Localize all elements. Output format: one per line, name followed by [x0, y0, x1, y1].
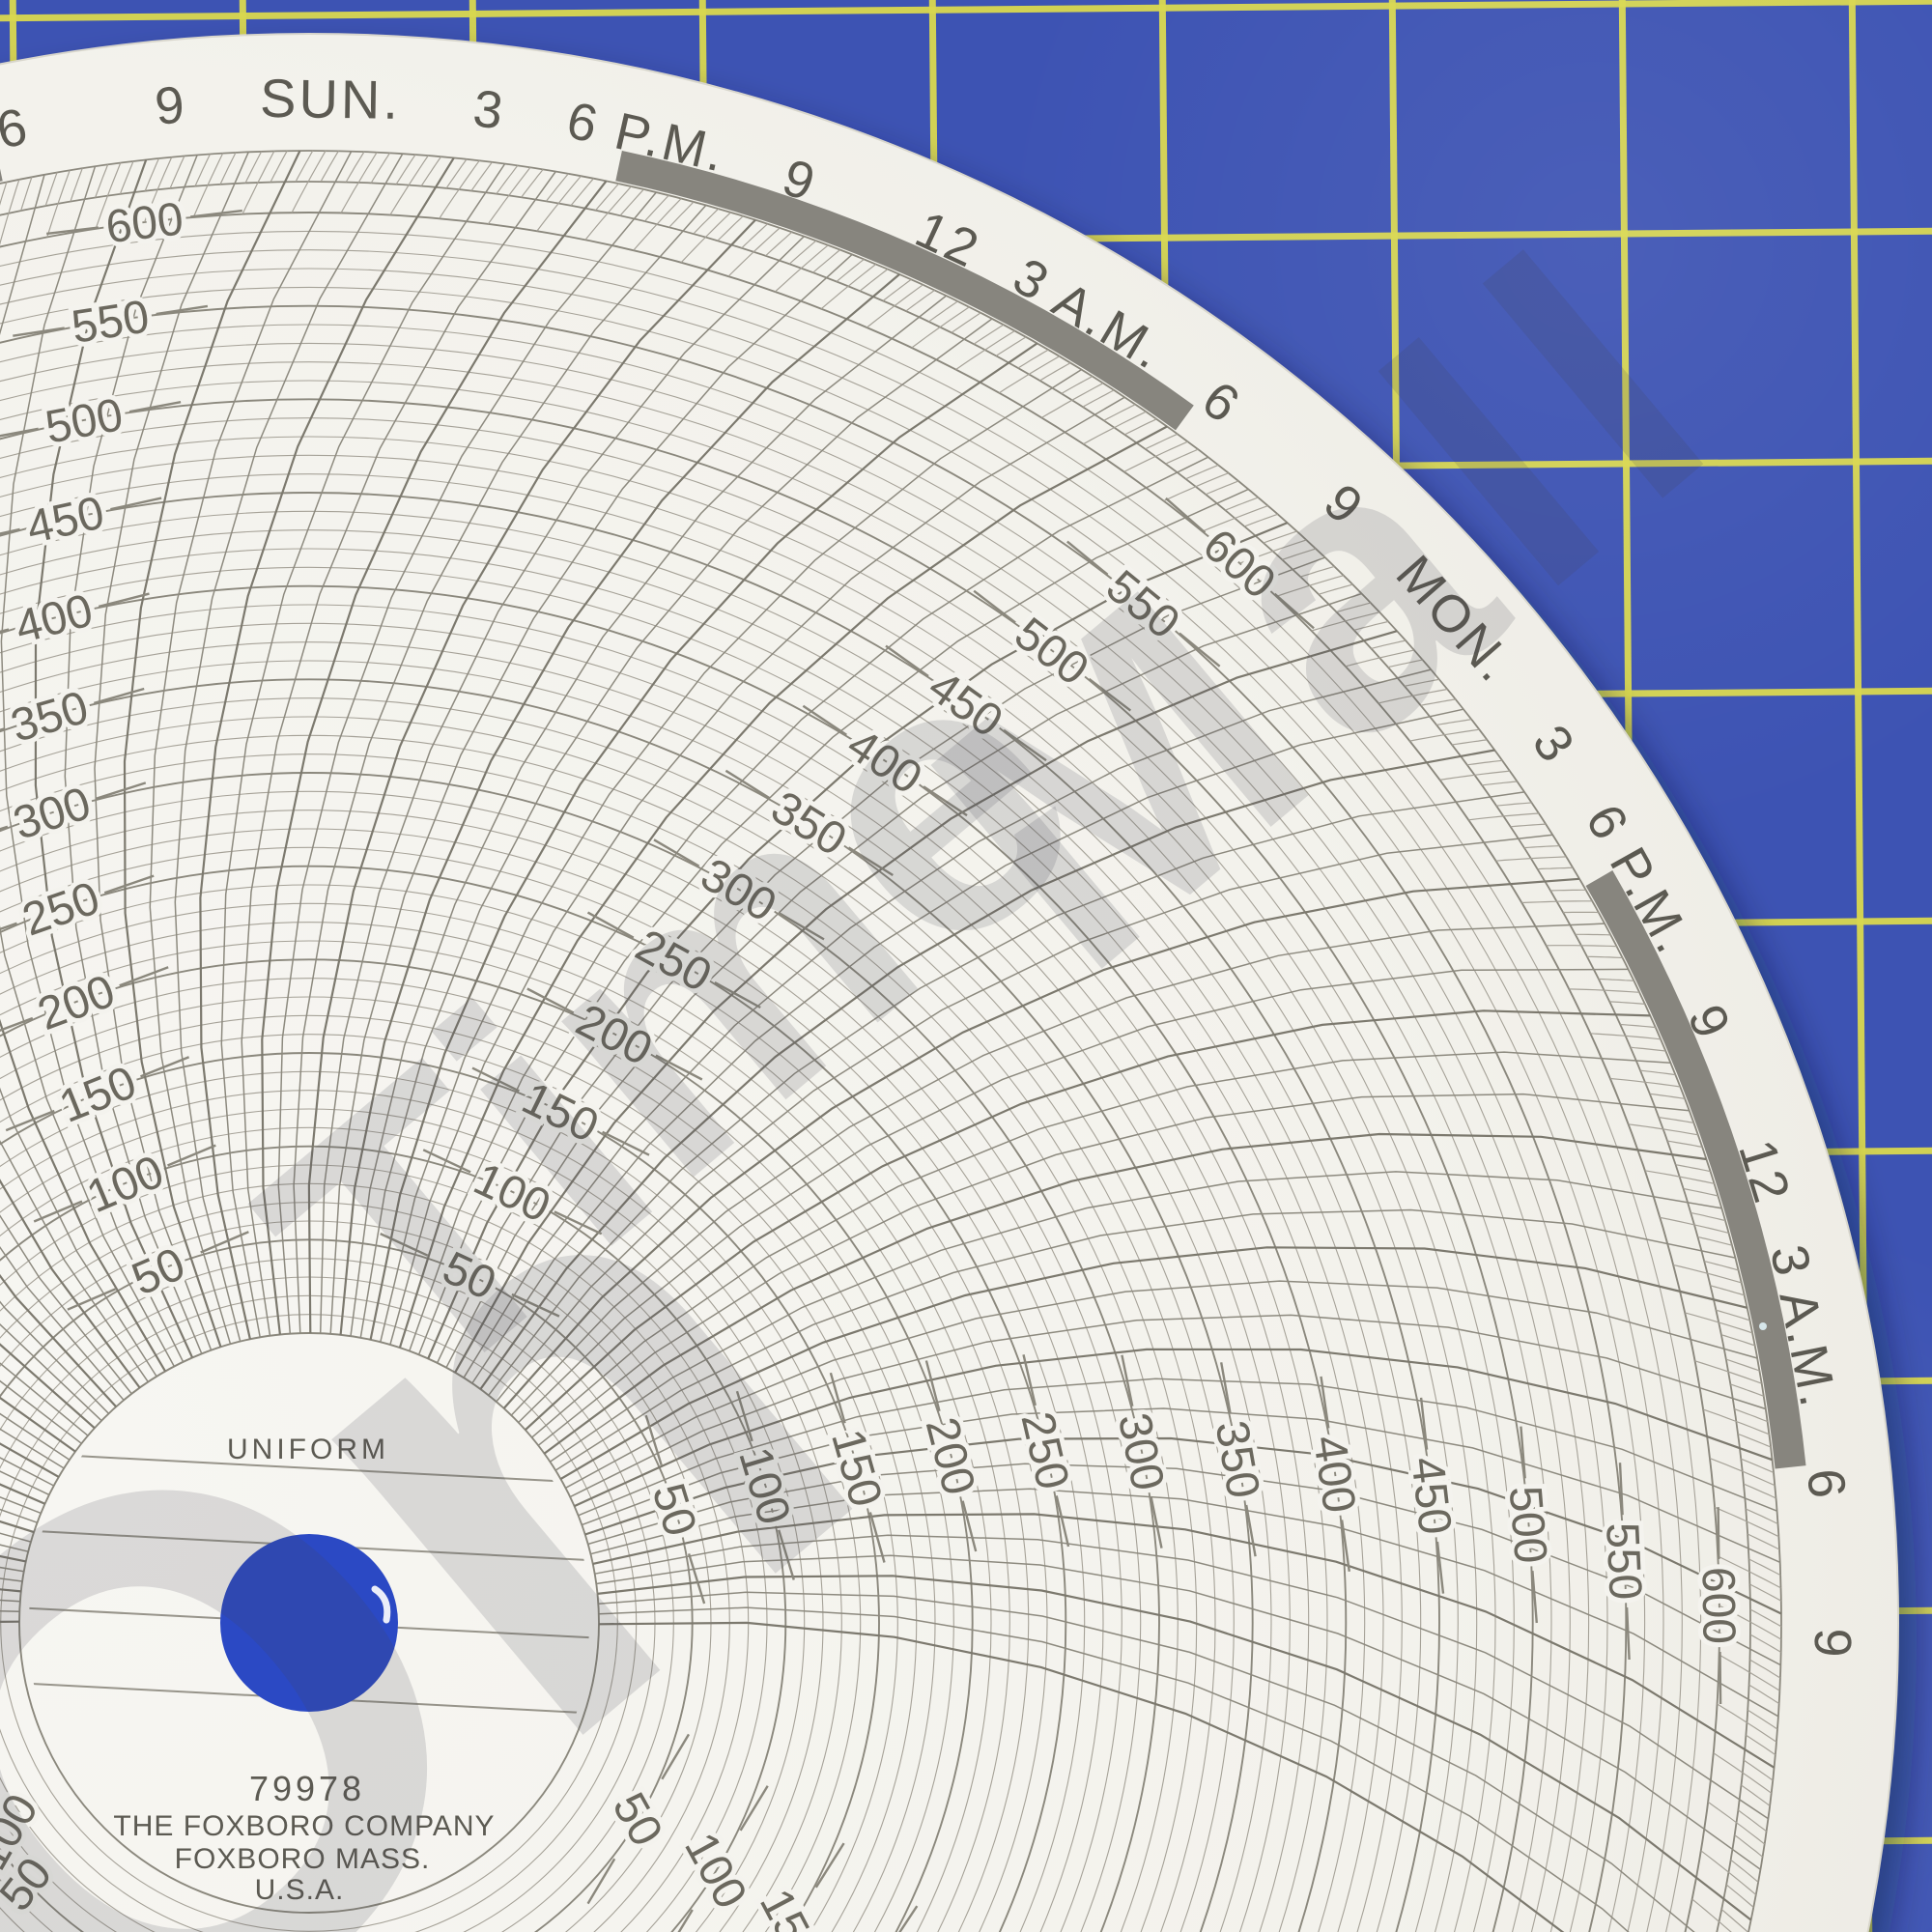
time-subdivision-line	[1550, 890, 1586, 891]
photo-of-recorder-chart-on-cutting-mat: 69SUN.36 P.M.9123 A.M.69MON.36 P.M.9123 …	[0, 0, 1932, 1932]
time-label: 3	[470, 79, 509, 140]
time-subdivision-line	[1576, 934, 1611, 935]
scale-label-tick	[1720, 1652, 1721, 1704]
scale-label-tick	[1719, 1507, 1719, 1559]
scale-value-label: 600	[103, 193, 186, 253]
time-label: 9	[1804, 1628, 1861, 1661]
time-label: 6	[1796, 1466, 1857, 1503]
scale-value-label: 450	[1401, 1455, 1461, 1538]
time-label: 9	[153, 75, 189, 136]
time-label: SUN.	[260, 68, 402, 130]
scale-value-label: 500	[1499, 1484, 1556, 1565]
foxboro-chart-photo: 69SUN.36 P.M.9123 A.M.69MON.36 P.M.9123 …	[0, 0, 1932, 1932]
scale-value-label: 600	[1692, 1567, 1745, 1645]
scale-value-label: 550	[1596, 1521, 1651, 1602]
dust-speck	[1759, 1322, 1767, 1330]
